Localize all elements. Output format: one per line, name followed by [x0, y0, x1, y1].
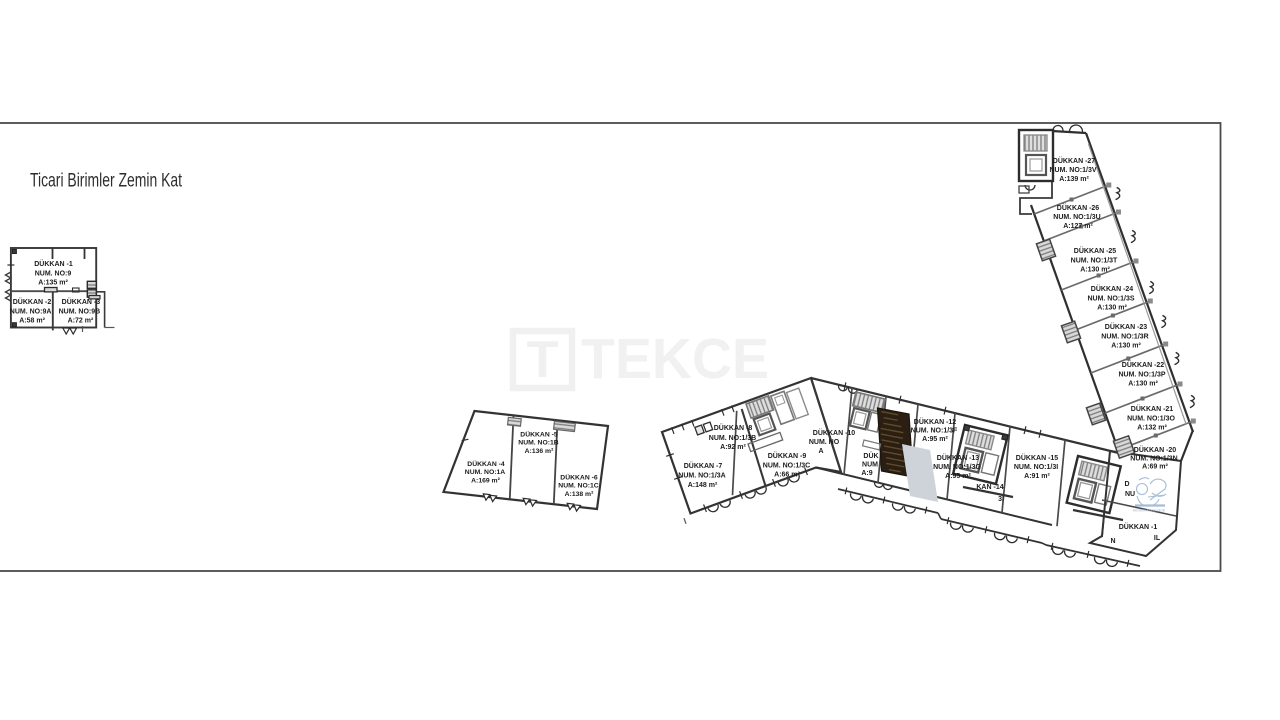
svg-text:DÜKKAN -5: DÜKKAN -5 — [520, 430, 558, 439]
svg-text:DÜKKAN -21: DÜKKAN -21 — [1131, 404, 1174, 413]
svg-text:Mimarlik Muhendislik: Mimarlik Muhendislik — [1133, 509, 1166, 513]
svg-text:A:130 m²: A:130 m² — [1097, 305, 1127, 312]
svg-text:A:91 m²: A:91 m² — [1024, 473, 1050, 480]
svg-text:TEKCE: TEKCE — [581, 327, 769, 391]
svg-text:DÜKKAN -27: DÜKKAN -27 — [1053, 156, 1096, 165]
svg-text:NU: NU — [1125, 491, 1135, 498]
svg-text:NUM. NO:1/3V: NUM. NO:1/3V — [1049, 167, 1096, 174]
svg-text:NUM. NO:1/3O: NUM. NO:1/3O — [1127, 416, 1175, 423]
svg-text:D: D — [1124, 481, 1129, 488]
svg-text:A:130 m²: A:130 m² — [1080, 267, 1110, 274]
svg-text:A:148 m²: A:148 m² — [688, 482, 718, 489]
svg-text:A:66 m²: A:66 m² — [774, 472, 800, 479]
svg-text:NUM. NO:1/3N: NUM. NO:1/3N — [1130, 456, 1177, 463]
svg-text:NUM. NO:1A: NUM. NO:1A — [465, 469, 505, 476]
svg-text:A:169 m²: A:169 m² — [471, 477, 500, 484]
svg-text:DÜKKAN -2: DÜKKAN -2 — [13, 297, 52, 306]
svg-text:A:136 m²: A:136 m² — [525, 448, 554, 455]
svg-text:NUM. NO:1/3G: NUM. NO:1/3G — [933, 464, 981, 471]
svg-text:A:58 m²: A:58 m² — [19, 317, 45, 324]
svg-text:DÜKKAN -13: DÜKKAN -13 — [937, 453, 980, 462]
svg-text:NUM. NO:1B: NUM. NO:1B — [518, 440, 558, 447]
svg-text:NUM. NO:1/3T: NUM. NO:1/3T — [1071, 258, 1118, 265]
svg-text:IL: IL — [1154, 535, 1161, 542]
svg-text:DÜKKAN -23: DÜKKAN -23 — [1105, 322, 1148, 331]
svg-text:DÜKKAN -26: DÜKKAN -26 — [1057, 203, 1100, 212]
svg-text:KAN -14: KAN -14 — [976, 484, 1003, 491]
svg-text:NUM. NO:1/3C: NUM. NO:1/3C — [763, 463, 810, 470]
svg-text:NUM. NO:1/3F: NUM. NO:1/3F — [911, 428, 958, 435]
svg-text:DÜKKAN -9: DÜKKAN -9 — [768, 451, 807, 460]
svg-text:A:9: A:9 — [861, 470, 872, 477]
svg-text:NUM. NO:1/3A: NUM. NO:1/3A — [678, 473, 725, 480]
svg-text:NUM. NO:9A: NUM. NO:9A — [10, 309, 52, 316]
svg-text:DÜKKAN -4: DÜKKAN -4 — [467, 459, 505, 468]
svg-text:NUM. NO:1/3U: NUM. NO:1/3U — [1053, 214, 1100, 221]
svg-text:DÜKKAN -7: DÜKKAN -7 — [684, 461, 723, 470]
svg-text:A:138 m²: A:138 m² — [565, 491, 594, 498]
svg-text:A:132 m²: A:132 m² — [1137, 425, 1167, 432]
svg-text:A: A — [818, 448, 823, 455]
svg-text:NUM. NO:1/3I: NUM. NO:1/3I — [1014, 464, 1058, 471]
svg-text:Ticari Birimler Zemin Kat: Ticari Birimler Zemin Kat — [30, 171, 183, 192]
svg-text:DÜKKAN -3: DÜKKAN -3 — [62, 297, 101, 306]
svg-text:NUM. NO:1/3R: NUM. NO:1/3R — [1101, 334, 1148, 341]
svg-text:A:92 m²: A:92 m² — [720, 444, 746, 451]
svg-text:NUM. NO:1C: NUM. NO:1C — [558, 483, 598, 490]
svg-text:T: T — [527, 331, 559, 389]
svg-text:NUM. NO:1/3P: NUM. NO:1/3P — [1118, 372, 1165, 379]
svg-text:DÜKKAN -6: DÜKKAN -6 — [560, 473, 598, 482]
svg-text:A:130 m²: A:130 m² — [1128, 381, 1158, 388]
svg-text:A:69 m²: A:69 m² — [1142, 464, 1168, 471]
svg-text:A:95 m²: A:95 m² — [922, 436, 948, 443]
svg-text:A:139 m²: A:139 m² — [1059, 176, 1089, 183]
svg-text:A:72 m²: A:72 m² — [68, 317, 94, 324]
svg-text:NUM. NO:9B: NUM. NO:9B — [59, 309, 101, 316]
svg-text:N: N — [1110, 538, 1115, 545]
svg-text:DÜKKAN -25: DÜKKAN -25 — [1074, 246, 1117, 255]
svg-text:A:130 m²: A:130 m² — [1111, 343, 1141, 350]
svg-text:NUM. NO:1/3B: NUM. NO:1/3B — [709, 435, 756, 442]
svg-text:DÜKKAN -8: DÜKKAN -8 — [714, 423, 753, 432]
svg-text:NUM. NO:1/3S: NUM. NO:1/3S — [1087, 296, 1134, 303]
svg-text:DÜKKAN -22: DÜKKAN -22 — [1122, 360, 1165, 369]
svg-text:A:135 m²: A:135 m² — [38, 280, 68, 287]
svg-text:NUM. NO: NUM. NO — [809, 439, 840, 446]
svg-text:DÜKKAN -1: DÜKKAN -1 — [1119, 522, 1158, 531]
svg-text:DÜKKAN -12: DÜKKAN -12 — [914, 417, 957, 426]
svg-text:3I: 3I — [998, 496, 1004, 503]
svg-text:NUM: NUM — [862, 462, 878, 469]
svg-text:A:95 m²: A:95 m² — [945, 473, 971, 480]
svg-text:NUM. NO:9: NUM. NO:9 — [35, 271, 72, 278]
svg-text:DÜK: DÜK — [863, 451, 878, 460]
svg-text:DÜKKAN -10: DÜKKAN -10 — [813, 428, 856, 437]
svg-text:A:127 m²: A:127 m² — [1063, 223, 1093, 230]
svg-text:DÜKKAN -1: DÜKKAN -1 — [34, 259, 73, 268]
svg-text:DÜKKAN -24: DÜKKAN -24 — [1091, 284, 1134, 293]
svg-text:DÜKKAN -15: DÜKKAN -15 — [1016, 453, 1059, 462]
svg-text:DÜKKAN -20: DÜKKAN -20 — [1134, 445, 1177, 454]
